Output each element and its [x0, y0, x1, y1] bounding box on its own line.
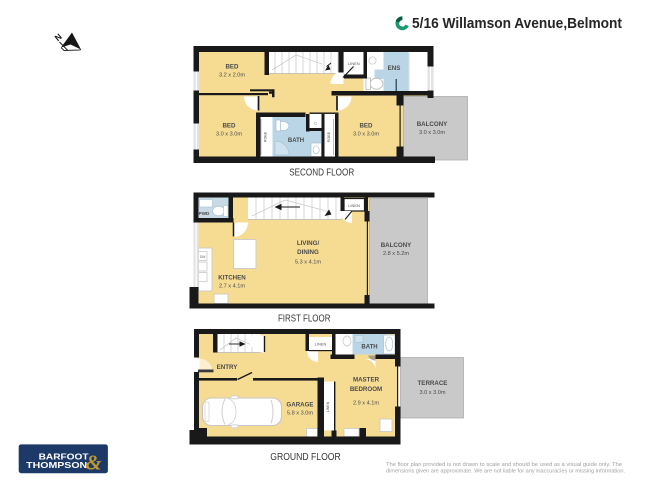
svg-text:BALCONY: BALCONY: [381, 242, 412, 249]
svg-text:BED: BED: [222, 123, 236, 130]
svg-text:FIRST FLOOR: FIRST FLOOR: [278, 313, 331, 324]
svg-text:2.8 x 5.2m: 2.8 x 5.2m: [383, 251, 409, 257]
svg-text:THOMPSON: THOMPSON: [26, 460, 87, 470]
svg-text:ROBE: ROBE: [327, 131, 331, 142]
svg-text:PWD: PWD: [199, 211, 210, 216]
svg-text:BED: BED: [359, 123, 373, 130]
svg-text:DW: DW: [200, 255, 206, 259]
svg-text:MASTER: MASTER: [353, 377, 380, 384]
svg-text:LINEN: LINEN: [326, 401, 330, 412]
svg-text:GARAGE: GARAGE: [286, 402, 313, 409]
svg-text:DINING: DINING: [297, 249, 319, 256]
svg-text:BEDROOM: BEDROOM: [350, 386, 382, 393]
svg-text:5.3 x 4.1m: 5.3 x 4.1m: [295, 260, 321, 266]
svg-text:C: C: [314, 122, 317, 126]
svg-text:KITCHEN: KITCHEN: [218, 275, 246, 282]
svg-text:3.0 x 3.0m: 3.0 x 3.0m: [419, 390, 445, 396]
svg-text:LINEN: LINEN: [348, 203, 360, 208]
svg-text:GROUND FLOOR: GROUND FLOOR: [270, 452, 341, 463]
svg-text:The floor plan provided is not: The floor plan provided is not drawn to …: [386, 462, 622, 468]
svg-text:ENTRY: ENTRY: [217, 364, 239, 371]
svg-text:5/16 Willamson Avenue,Belmont: 5/16 Willamson Avenue,Belmont: [412, 15, 622, 32]
svg-text:SECOND FLOOR: SECOND FLOOR: [289, 167, 354, 178]
svg-text:dimensions given are approxima: dimensions given are approximate. We are…: [386, 469, 625, 475]
svg-text:LIVING/: LIVING/: [297, 240, 320, 247]
svg-text:3.2 x 2.0m: 3.2 x 2.0m: [219, 73, 245, 79]
svg-text:3.0 x 3.0m: 3.0 x 3.0m: [419, 130, 445, 136]
svg-text:BALCONY: BALCONY: [417, 121, 448, 128]
svg-text:BATH: BATH: [288, 138, 304, 144]
svg-text:2.9 x 4.1m: 2.9 x 4.1m: [353, 401, 379, 407]
svg-text:3.0 x 3.0m: 3.0 x 3.0m: [353, 132, 379, 138]
svg-text:LINEN: LINEN: [348, 61, 360, 66]
svg-text:ROBE: ROBE: [264, 131, 268, 142]
svg-text:BED: BED: [225, 64, 239, 71]
svg-text:&: &: [85, 451, 102, 475]
svg-text:LINEN: LINEN: [315, 342, 327, 347]
svg-text:3.0 x 3.0m: 3.0 x 3.0m: [216, 132, 242, 138]
svg-text:TERRACE: TERRACE: [418, 380, 448, 387]
svg-text:2.7 x 4.1m: 2.7 x 4.1m: [219, 284, 245, 290]
svg-text:ENS: ENS: [388, 65, 401, 72]
svg-text:BATH: BATH: [361, 345, 377, 351]
svg-text:5.8 x 3.0m: 5.8 x 3.0m: [287, 411, 313, 417]
